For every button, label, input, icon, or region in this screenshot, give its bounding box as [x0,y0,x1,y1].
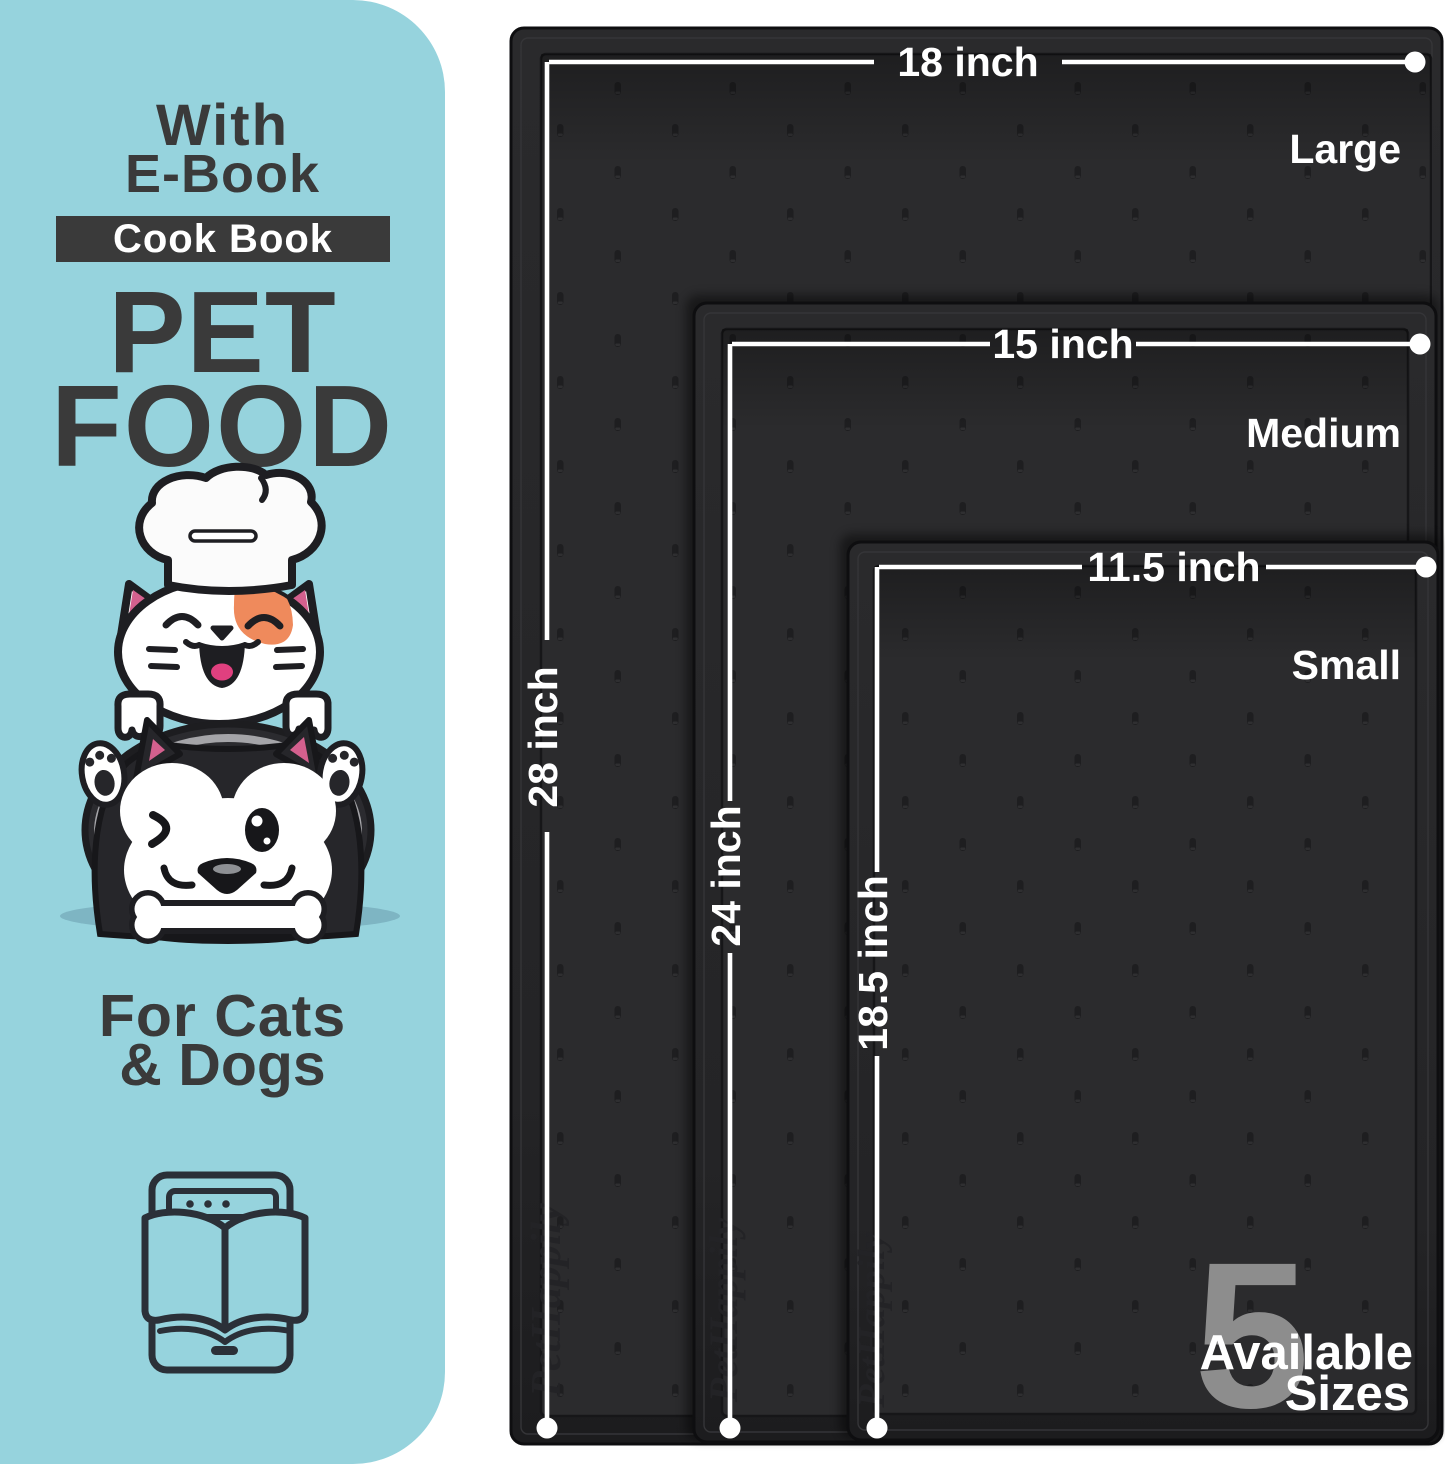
svg-text:24 inch: 24 inch [703,805,749,946]
svg-text:15 inch: 15 inch [992,321,1133,367]
svg-text:Large: Large [1289,126,1401,172]
svg-text:11.5 inch: 11.5 inch [1087,544,1260,590]
svg-text:Medium: Medium [1246,410,1401,456]
svg-text:PetHappily: PetHappily [701,1218,746,1404]
svg-text:18 inch: 18 inch [897,39,1038,85]
svg-text:28 inch: 28 inch [520,666,566,807]
svg-text:Sizes: Sizes [1285,1367,1410,1421]
svg-text:Small: Small [1292,642,1401,688]
svg-text:PetHappily: PetHappily [851,1232,893,1408]
svg-text:18.5 inch: 18.5 inch [850,875,896,1050]
